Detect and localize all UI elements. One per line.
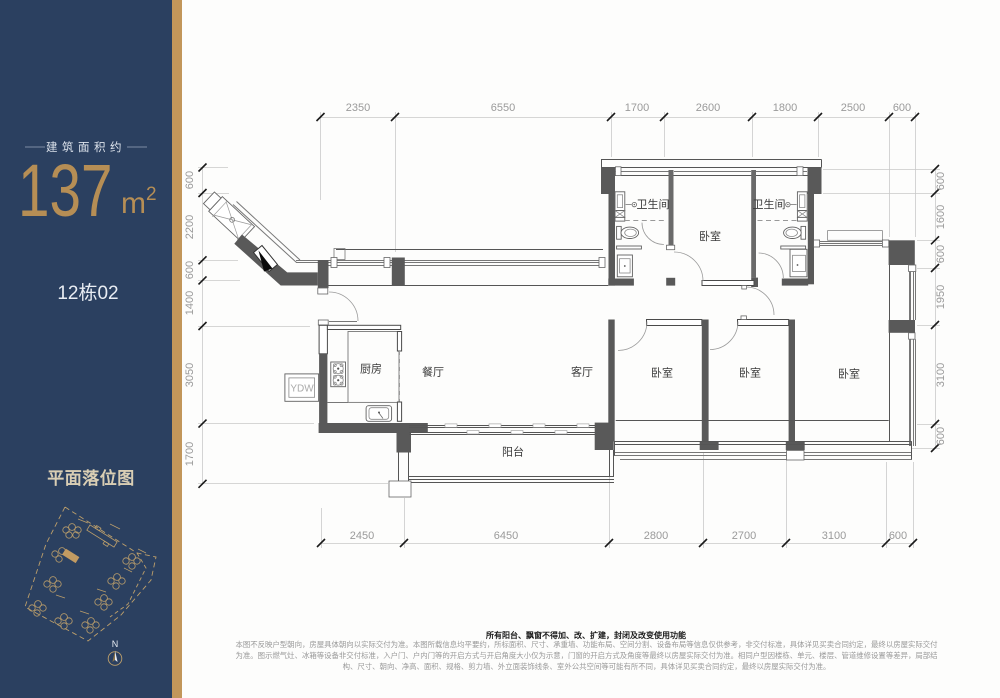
svg-text:1700: 1700 bbox=[625, 102, 649, 114]
svg-text:卧室: 卧室 bbox=[739, 366, 761, 380]
svg-text:2200: 2200 bbox=[184, 215, 196, 239]
svg-text:6450: 6450 bbox=[494, 530, 518, 542]
svg-text:3100: 3100 bbox=[935, 363, 947, 387]
svg-text:12栋02: 12栋02 bbox=[57, 282, 118, 304]
svg-text:2700: 2700 bbox=[732, 530, 756, 542]
svg-text:600: 600 bbox=[893, 102, 911, 114]
svg-text:1600: 1600 bbox=[935, 205, 947, 229]
svg-text:1800: 1800 bbox=[773, 102, 797, 114]
svg-text:3050: 3050 bbox=[184, 363, 196, 387]
svg-text:2800: 2800 bbox=[644, 530, 668, 542]
svg-text:卫生间: 卫生间 bbox=[753, 197, 786, 211]
svg-text:卧室: 卧室 bbox=[651, 366, 673, 380]
svg-text:餐厅: 餐厅 bbox=[422, 365, 444, 379]
svg-text:600: 600 bbox=[184, 171, 196, 189]
svg-text:2350: 2350 bbox=[346, 102, 370, 114]
svg-text:1400: 1400 bbox=[184, 291, 196, 315]
svg-text:137: 137 bbox=[18, 149, 112, 232]
svg-text:厨房: 厨房 bbox=[360, 363, 382, 376]
svg-text:2600: 2600 bbox=[696, 102, 720, 114]
svg-text:m: m bbox=[121, 187, 146, 220]
svg-text:600: 600 bbox=[889, 530, 907, 542]
svg-text:3100: 3100 bbox=[822, 530, 846, 542]
svg-text:1950: 1950 bbox=[935, 285, 947, 309]
svg-text:1700: 1700 bbox=[184, 442, 196, 466]
svg-text:600: 600 bbox=[935, 172, 947, 190]
svg-text:YDW: YDW bbox=[290, 384, 314, 395]
svg-text:600: 600 bbox=[184, 261, 196, 279]
svg-text:阳台: 阳台 bbox=[502, 445, 524, 459]
svg-text:6550: 6550 bbox=[491, 102, 515, 114]
svg-text:卧室: 卧室 bbox=[838, 367, 860, 381]
svg-text:2450: 2450 bbox=[350, 530, 374, 542]
svg-text:平面落位图: 平面落位图 bbox=[47, 468, 135, 488]
svg-text:600: 600 bbox=[935, 245, 947, 263]
svg-text:2: 2 bbox=[146, 184, 157, 205]
svg-text:卧室: 卧室 bbox=[699, 229, 721, 243]
svg-text:600: 600 bbox=[935, 427, 947, 445]
svg-text:客厅: 客厅 bbox=[571, 365, 593, 379]
svg-text:N: N bbox=[112, 639, 119, 649]
svg-text:卫生间: 卫生间 bbox=[637, 197, 670, 211]
svg-text:2500: 2500 bbox=[841, 102, 865, 114]
